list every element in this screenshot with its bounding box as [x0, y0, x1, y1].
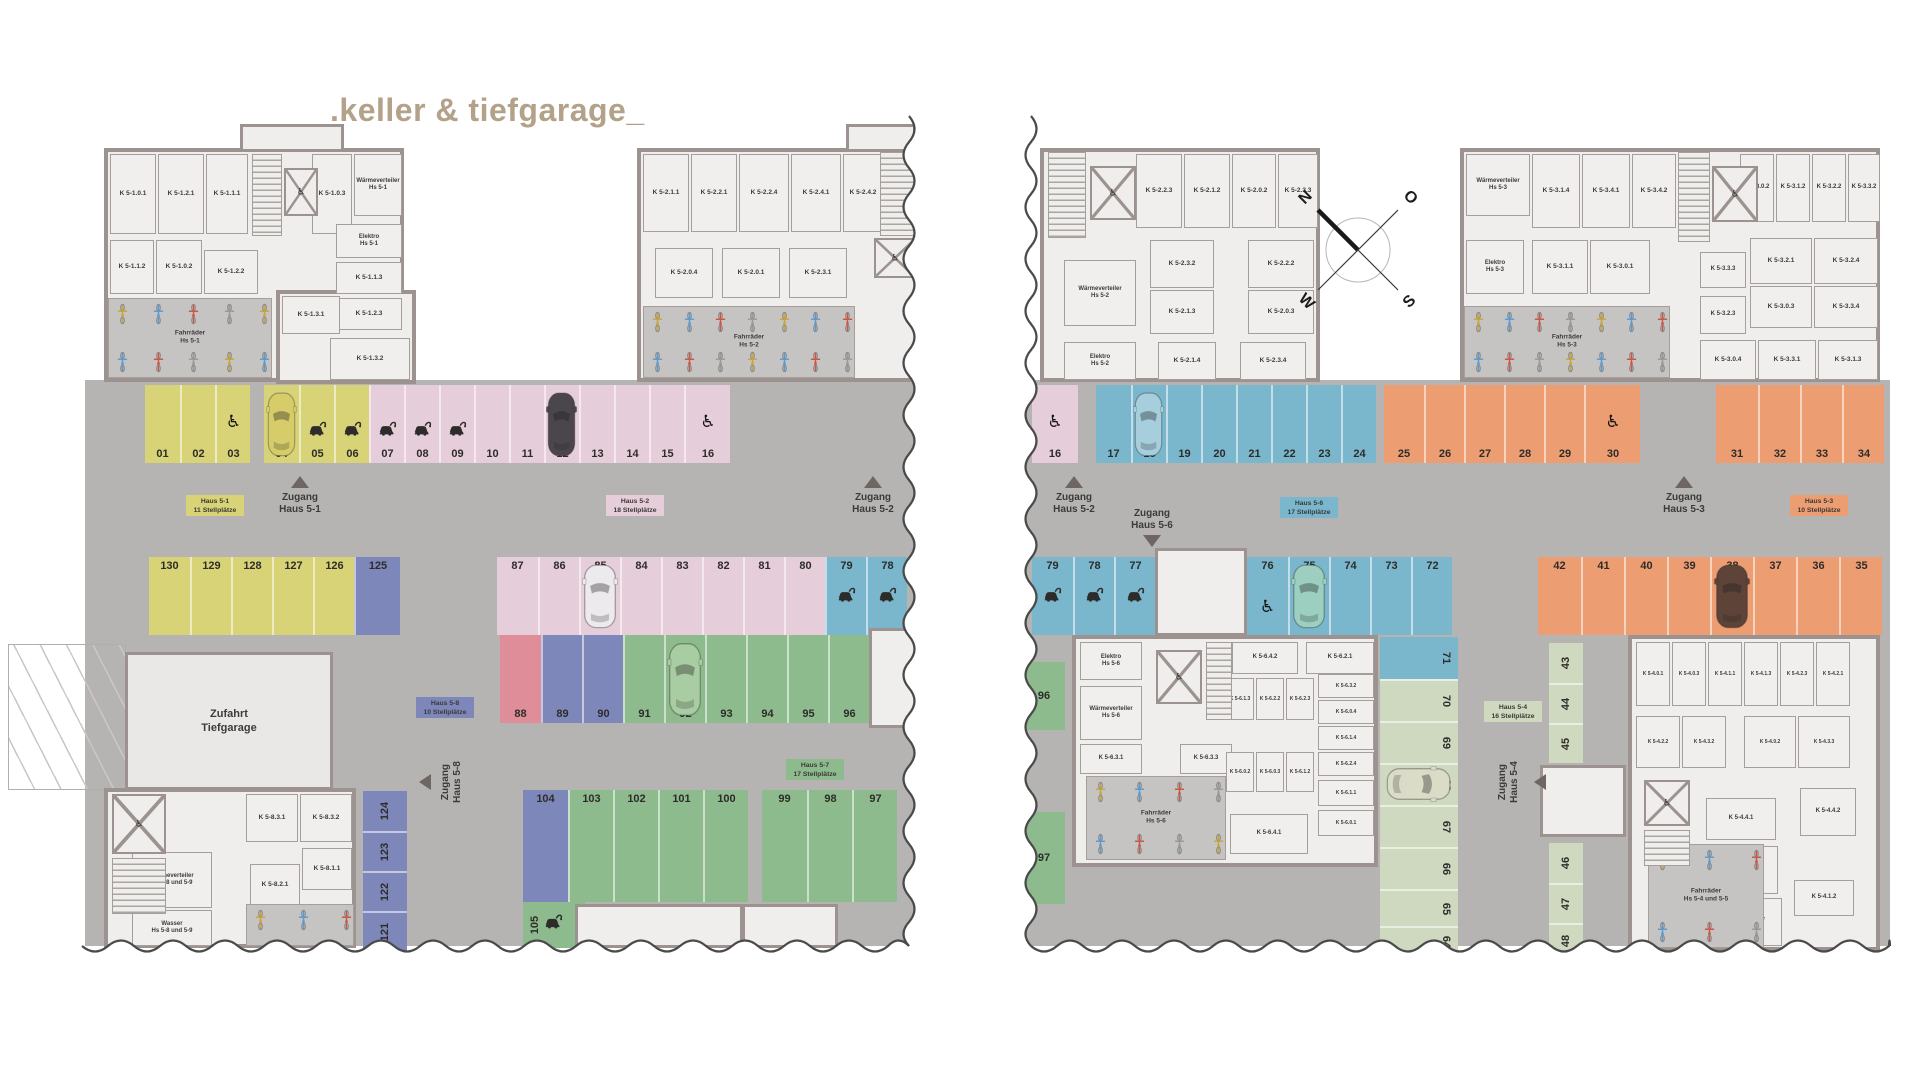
parking-spot: 16♿ [684, 385, 730, 463]
cellar-room: K 5-4.0.1 [1636, 642, 1670, 706]
parking-spot-number: 98 [809, 793, 852, 805]
bicycle-icon [1704, 921, 1715, 943]
parking-spot: 128 [231, 557, 272, 635]
cellar-room: K 5-3.3.3 [1700, 252, 1746, 288]
bicycle-icon [779, 351, 790, 373]
parking-spot: 39 [1667, 557, 1710, 635]
cellar-room-label: Elektro Hs 5-2 [1090, 354, 1110, 369]
cellar-room: K 5-4.1.2 [1794, 880, 1854, 916]
parking-spot-number: 03 [217, 448, 250, 460]
parking-spot-number: 93 [707, 708, 746, 720]
parking-spot: 13 [579, 385, 614, 463]
bicycle-icon [1596, 311, 1607, 333]
cellar-room: K 5-2.0.1 [722, 248, 780, 298]
staircase [1678, 152, 1710, 242]
parking-spot: 28 [1504, 385, 1544, 463]
car-icon [1133, 389, 1164, 459]
bicycle-icon [1534, 351, 1545, 373]
cellar-room-label: K 5-2.2.3 [1146, 187, 1173, 195]
cellar-room-label: K 5-1.2.1 [168, 190, 195, 198]
parking-spot: 32 [1758, 385, 1800, 463]
cellar-room-label: K 5-2.4.2 [850, 189, 877, 197]
bike-area-label: Fahrräder Hs 5-1 [109, 330, 271, 347]
cellar-room-label: K 5-4.4.2 [1816, 808, 1841, 816]
cellar-room-label: K 5-1.1.3 [356, 274, 383, 282]
cellar-room-label: K 5-3.3.3 [1711, 266, 1736, 274]
bike-area-label: Fahrräder Hs 5-2 [644, 334, 854, 351]
parking-spot-number: 10 [476, 448, 509, 460]
parking-spot: 22 [1271, 385, 1306, 463]
wheelchair-icon: ♿ [1586, 412, 1640, 432]
cellar-room: K 5-6.2.2 [1256, 678, 1284, 720]
parking-spot-number: 19 [1168, 448, 1201, 460]
parking-spot: 98 [807, 790, 852, 902]
zone-badge: Haus 5-416 Stellplätze [1484, 701, 1542, 722]
cellar-room: K 5-3.3.4 [1814, 286, 1878, 328]
parking-spot-number: 66 [1440, 859, 1452, 879]
parking-spot: 02 [180, 385, 215, 463]
cellar-room: K 5-4.2.2 [1636, 716, 1680, 768]
parking-spot-number: 15 [651, 448, 684, 460]
bike-area-label: Fahrräder Hs 5-3 [1465, 334, 1669, 351]
parking-spot: 76♿ [1247, 557, 1288, 635]
cellar-room: Wärmeverteiler Hs 5-6 [1080, 686, 1142, 740]
bicycle-icon [1596, 351, 1607, 373]
car-icon [1714, 561, 1750, 631]
cellar-room-label: K 5-3.2.2 [1817, 184, 1842, 192]
cellar-room: K 5-1.2.2 [204, 250, 258, 294]
elevator: ♿ [1712, 166, 1758, 222]
bicycle-icon [188, 303, 199, 325]
parking-spot: 100 [703, 790, 748, 902]
cellar-room-label: K 5-3.1.4 [1543, 187, 1570, 195]
cellar-room: K 5-1.0.2 [156, 240, 202, 294]
cellar-room-label: K 5-6.1.4 [1336, 735, 1357, 741]
cellar-room: Wärmeverteiler Hs 5-2 [1064, 260, 1136, 326]
parking-spot-number: 74 [1331, 560, 1370, 572]
cellar-room-label: K 5-4.0.1 [1643, 671, 1664, 677]
cellar-room: K 5-6.0.3 [1256, 752, 1284, 792]
cellar-room: K 5-3.4.2 [1632, 154, 1676, 228]
structure-block [1155, 548, 1247, 636]
cellar-room-label: K 5-4.2.2 [1648, 739, 1669, 745]
parking-spot-number: 48 [1560, 924, 1572, 958]
parking-spot-number: 67 [1440, 817, 1452, 837]
zone-badge-count: 18 Stellplätze [606, 506, 664, 515]
bicycle-icon [1657, 351, 1668, 373]
zone-badge-haus: Haus 5-7 [786, 761, 844, 770]
parking-spot-number: 97 [1023, 852, 1065, 864]
access-arrow-icon [1675, 476, 1693, 488]
parking-spot-number: 96 [830, 708, 869, 720]
access-arrow-icon [419, 774, 431, 790]
parking-spot: 07 [369, 385, 404, 463]
parking-spot: 124 [363, 791, 407, 831]
cellar-room-label: Wasser Hs 5-8 und 5-9 [151, 921, 192, 936]
bicycle-icon [1751, 921, 1762, 943]
cellar-room: K 5-2.3.2 [1150, 240, 1214, 288]
parking-spot-number: 24 [1343, 448, 1376, 460]
parking-spot-number: 79 [827, 560, 866, 572]
parking-spot-number: 103 [570, 793, 613, 805]
parking-spot-number: 22 [1273, 448, 1306, 460]
parking-spot: 66 [1380, 847, 1458, 889]
bicycle-icon [1473, 311, 1484, 333]
parking-spot-number: 25 [1384, 448, 1424, 460]
cellar-room: K 5-2.1.4 [1158, 342, 1216, 380]
bicycle-icon [1095, 833, 1106, 855]
cellar-room-label: K 5-6.3.3 [1194, 755, 1219, 763]
elevator: ♿ [1090, 166, 1136, 220]
cellar-room-label: K 5-6.4.1 [1257, 830, 1282, 838]
wheelchair-icon: ♿ [891, 253, 899, 264]
parking-spot-number: 76 [1247, 560, 1288, 572]
parking-spot: 26 [1424, 385, 1464, 463]
cellar-room-label: K 5-6.1.1 [1336, 790, 1357, 796]
cellar-room-label: K 5-3.0.1 [1607, 263, 1634, 271]
cellar-room: K 5-3.3.1 [1758, 340, 1816, 380]
parking-spot-number: 64 [1440, 932, 1452, 952]
cellar-room: K 5-8.3.2 [300, 794, 352, 842]
parking-spot: 93 [705, 635, 746, 723]
cellar-room-label: K 5-8.3.1 [259, 814, 286, 822]
cellar-room: Elektro Hs 5-3 [1466, 240, 1524, 294]
bicycle-icon [684, 351, 695, 373]
parking-spot: 99 [762, 790, 807, 902]
structure-block [742, 904, 838, 948]
cellar-room: K 5-6.1.4 [1318, 726, 1374, 750]
bicycle-icon [1473, 351, 1484, 373]
cellar-room: K 5-1.2.1 [158, 154, 204, 234]
parking-spot: 77 [1114, 557, 1155, 635]
parking-spot: 20 [1201, 385, 1236, 463]
bicycle-icon [1095, 781, 1106, 803]
staircase [1644, 830, 1690, 866]
access-arrow-icon [1143, 535, 1161, 547]
cellar-room-label: K 5-4.2.3 [1787, 671, 1808, 677]
cellar-room: K 5-6.0.1 [1318, 810, 1374, 836]
parking-spot: 97 [852, 790, 897, 902]
staircase [1048, 152, 1086, 238]
zone-badge-count: 17 Stellplätze [786, 770, 844, 779]
cellar-room: Elektro Hs 5-6 [1080, 642, 1142, 680]
ramp-hatch-area [8, 644, 126, 790]
parking-spot-number: 90 [584, 708, 623, 720]
car-icon [1384, 766, 1454, 802]
cellar-room: K 5-3.3.2 [1848, 154, 1880, 222]
cellar-room-label: K 5-3.2.4 [1833, 257, 1860, 265]
cellar-room: K 5-6.2.3 [1286, 678, 1314, 720]
wheelchair-icon: ♿ [1109, 188, 1117, 199]
bicycle-icon [779, 311, 790, 333]
parking-spot-number: 27 [1466, 448, 1504, 460]
parking-spot-number: 28 [1506, 448, 1544, 460]
cellar-room-label: K 5-1.0.2 [166, 263, 193, 271]
parking-spot-number: 02 [182, 448, 215, 460]
parking-spot-number: 37 [1755, 560, 1796, 572]
cellar-room: K 5-8.1.1 [302, 848, 352, 890]
cellar-room-label: Wärmeverteiler Hs 5-2 [1078, 286, 1121, 301]
structure-block [240, 124, 344, 152]
cellar-room-label: K 5-8.3.2 [313, 814, 340, 822]
cellar-room-label: K 5-6.0.4 [1336, 709, 1357, 715]
wheelchair-icon: ♿ [135, 819, 143, 830]
cellar-room-label: K 5-4.1.1 [1715, 671, 1736, 677]
parking-spot: 09 [439, 385, 474, 463]
cellar-room: K 5-2.0.2 [1232, 154, 1276, 228]
parking-spot-number: 39 [1669, 560, 1710, 572]
bicycle-icon [652, 351, 663, 373]
parking-spot: 15 [649, 385, 684, 463]
cellar-room-label: K 5-6.2.1 [1328, 654, 1353, 662]
bicycle-icon [684, 311, 695, 333]
parking-spot-number: 86 [540, 560, 579, 572]
parking-spot-number: 96 [1023, 690, 1065, 702]
parking-spot-number: 01 [145, 448, 180, 460]
parking-spot: 14 [614, 385, 649, 463]
parking-spot: 67 [1380, 805, 1458, 847]
ev-charging-icon [336, 419, 369, 441]
parking-spot-number: 34 [1844, 448, 1884, 460]
parking-spot: 81 [743, 557, 784, 635]
bicycle-icon [810, 311, 821, 333]
parking-spot: 82 [702, 557, 743, 635]
parking-spot: 43 [1549, 643, 1583, 683]
parking-spot-number: 121 [379, 910, 391, 954]
cellar-room: K 5-4.0.3 [1672, 642, 1706, 706]
bike-storage-area: Fahrräder Hs 5-3 [1464, 306, 1670, 378]
parking-spot-number: 129 [192, 560, 231, 572]
bicycle-icon [1565, 311, 1576, 333]
cellar-room-label: K 5-3.1.3 [1835, 356, 1862, 364]
elevator: ♿ [284, 168, 318, 216]
cellar-room: Elektro Hs 5-1 [336, 224, 402, 258]
cellar-room: K 5-3.2.4 [1814, 238, 1878, 284]
cellar-room-label: K 5-3.1.1 [1547, 263, 1574, 271]
bicycle-icon [810, 351, 821, 373]
bicycle-icon [259, 351, 270, 373]
parking-spot: 23 [1306, 385, 1341, 463]
cellar-room-label: K 5-6.4.2 [1253, 654, 1278, 662]
parking-spot: 104 [523, 790, 568, 902]
cellar-room: K 5-6.2.4 [1318, 752, 1374, 776]
bicycle-icon [747, 311, 758, 333]
wheelchair-icon: ♿ [1663, 798, 1671, 809]
cellar-room: K 5-6.4.2 [1232, 642, 1298, 674]
zone-badge-haus: Haus 5-3 [1790, 497, 1848, 506]
parking-spot: 64 [1380, 926, 1458, 956]
parking-spot-number: 23 [1308, 448, 1341, 460]
cellar-room-label: K 5-6.3.1 [1099, 755, 1124, 763]
parking-spot: 65 [1380, 889, 1458, 926]
zone-badge-haus: Haus 5-6 [1280, 499, 1338, 508]
bicycle-icon [117, 303, 128, 325]
parking-spot-number: 123 [379, 830, 391, 874]
parking-spot: 125 [354, 557, 400, 635]
bicycle-icon [224, 351, 235, 373]
parking-spot: 122 [363, 871, 407, 911]
parking-spot: 05 [299, 385, 334, 463]
elevator: ♿ [874, 238, 916, 278]
bicycle-icon [1657, 311, 1668, 333]
structure-block [1540, 765, 1626, 837]
cellar-room-label: K 5-2.0.1 [738, 269, 765, 277]
parking-spot-number: 17 [1096, 448, 1131, 460]
ev-charging-icon [1032, 585, 1073, 607]
bicycle-icon [1213, 833, 1224, 855]
parking-spot: 97 [1023, 812, 1065, 904]
bicycle-icon [1174, 781, 1185, 803]
zone-badge: Haus 5-111 Stellplätze [186, 495, 244, 516]
cellar-room-label: K 5-2.3.4 [1260, 357, 1287, 365]
parking-spot-number: 71 [1440, 648, 1452, 668]
parking-spot: 79 [1032, 557, 1073, 635]
cellar-room: K 5-6.3.2 [1318, 674, 1374, 698]
bicycle-icon [224, 303, 235, 325]
parking-spot-number: 126 [315, 560, 354, 572]
cellar-room: K 5-3.1.3 [1818, 340, 1878, 380]
zone-badge-haus: Haus 5-4 [1484, 703, 1542, 712]
cellar-room: K 5-4.2.3 [1780, 642, 1814, 706]
bicycle-icon [298, 909, 309, 931]
cellar-room: K 5-3.1.2 [1776, 154, 1810, 222]
parking-spot-number: 44 [1560, 687, 1572, 721]
parking-spot-number: 77 [1116, 560, 1155, 572]
zone-badge-haus: Haus 5-2 [606, 497, 664, 506]
parking-spot: 17 [1096, 385, 1131, 463]
parking-spot-number: 87 [497, 560, 538, 572]
cellar-room-label: K 5-2.0.4 [671, 269, 698, 277]
cellar-room-label: K 5-3.1.2 [1781, 184, 1806, 192]
cellar-room: K 5-6.0.4 [1318, 700, 1374, 724]
cellar-room-label: K 5-8.2.1 [262, 881, 289, 889]
cellar-room-label: K 5-2.1.4 [1174, 357, 1201, 365]
parking-spot-number: 08 [406, 448, 439, 460]
parking-spot-number: 101 [660, 793, 703, 805]
cellar-room-label: K 5-3.0.4 [1715, 356, 1742, 364]
parking-spot-number: 99 [762, 793, 807, 805]
parking-spot-number: 124 [379, 789, 391, 833]
parking-spot-number: 05 [301, 448, 334, 460]
parking-spot: 102 [613, 790, 658, 902]
cellar-room: K 5-1.2.3 [336, 298, 402, 330]
parking-spot: 37 [1753, 557, 1796, 635]
parking-spot-number: 83 [663, 560, 702, 572]
cellar-room: K 5-1.1.1 [206, 154, 248, 234]
parking-spot: 70 [1380, 679, 1458, 721]
ev-charging-icon [1116, 585, 1155, 607]
parking-spot: 96 [828, 635, 869, 723]
bike-storage-area: Fahrräder Hs 5-6 [1086, 776, 1226, 860]
cellar-room-label: K 5-3.0.3 [1768, 303, 1795, 311]
ev-charging-icon [371, 419, 404, 441]
parking-spot-number: 73 [1372, 560, 1411, 572]
cellar-room-label: K 5-6.2.2 [1260, 696, 1281, 702]
parking-spot: 10 [474, 385, 509, 463]
parking-spot-number: 35 [1841, 560, 1882, 572]
parking-spot-number: 33 [1802, 448, 1842, 460]
parking-spot: 96 [1023, 662, 1065, 730]
cellar-room-label: K 5-2.1.3 [1169, 308, 1196, 316]
parking-spot: 08 [404, 385, 439, 463]
bicycle-icon [1626, 311, 1637, 333]
cellar-room-label: Elektro Hs 5-6 [1101, 654, 1121, 669]
cellar-room: K 5-4.0.2 [1744, 716, 1796, 768]
cellar-room-label: K 5-2.1.1 [653, 189, 680, 197]
parking-spot: 89 [541, 635, 582, 723]
parking-spot: 47 [1549, 883, 1583, 923]
parking-spot: 88 [500, 635, 541, 723]
cellar-room: Wasser Hs 5-8 und 5-9 [132, 910, 212, 946]
ev-charging-icon [441, 419, 474, 441]
cellar-room: Elektro Hs 5-2 [1064, 342, 1136, 380]
cellar-room: K 5-1.0.1 [110, 154, 156, 234]
parking-spot: 103 [568, 790, 613, 902]
parking-spot-number: 84 [622, 560, 661, 572]
parking-spot: 44 [1549, 683, 1583, 723]
bicycle-icon [1174, 833, 1185, 855]
parking-spot-number: 26 [1426, 448, 1464, 460]
zone-badge: Haus 5-310 Stellplätze [1790, 495, 1848, 516]
parking-spot-number: 09 [441, 448, 474, 460]
parking-spot: 24 [1341, 385, 1376, 463]
bicycle-icon [153, 351, 164, 373]
cellar-room: K 5-6.1.2 [1286, 752, 1314, 792]
cellar-room-label: K 5-3.3.2 [1852, 184, 1877, 192]
parking-spot-number: 06 [336, 448, 369, 460]
cellar-room: K 5-4.3.3 [1798, 716, 1850, 768]
cellar-room: K 5-6.0.2 [1226, 752, 1254, 792]
wheelchair-icon: ♿ [1731, 189, 1739, 200]
parking-spot-number: 14 [616, 448, 649, 460]
zone-badge-count: 10 Stellplätze [416, 708, 474, 717]
parking-spot: 91 [623, 635, 664, 723]
ev-charging-icon [406, 419, 439, 441]
structure-block [869, 628, 917, 728]
car-icon [582, 561, 618, 631]
parking-spot-number: 128 [233, 560, 272, 572]
zone-badge: Haus 5-717 Stellplätze [786, 759, 844, 780]
parking-spot-number: 72 [1413, 560, 1452, 572]
parking-spot-number: 32 [1760, 448, 1800, 460]
cellar-room: K 5-4.2.1 [1816, 642, 1850, 706]
parking-spot-number: 29 [1546, 448, 1584, 460]
staircase [252, 154, 282, 236]
cellar-room: K 5-3.2.1 [1750, 238, 1812, 284]
ev-charging-icon [827, 585, 866, 607]
bicycle-icon [1134, 781, 1145, 803]
bike-storage-area: Fahrräder Hs 5-2 [643, 306, 855, 378]
parking-spot: 27 [1464, 385, 1504, 463]
cellar-room-label: K 5-2.1.2 [1194, 187, 1221, 195]
parking-spot-number: 125 [356, 560, 400, 572]
parking-spot-number: 88 [500, 708, 541, 720]
parking-spot: 79 [825, 557, 866, 635]
car-icon [546, 389, 577, 459]
cellar-room-label: K 5-4.3.2 [1694, 739, 1715, 745]
parking-spot-number: 13 [581, 448, 614, 460]
cellar-room-label: K 5-3.3.1 [1774, 356, 1801, 364]
cellar-room: Wärmeverteiler Hs 5-1 [354, 154, 402, 216]
cellar-room-label: K 5-4.1.2 [1812, 894, 1837, 902]
staircase [880, 152, 916, 236]
cellar-room: K 5-3.2.2 [1812, 154, 1846, 222]
cellar-room: K 5-2.4.1 [791, 154, 841, 232]
cellar-room-label: K 5-1.1.1 [214, 190, 241, 198]
bicycle-icon [652, 311, 663, 333]
zugang-label: Zugang Haus 5-2 [838, 492, 908, 515]
parking-spot-number: 20 [1203, 448, 1236, 460]
